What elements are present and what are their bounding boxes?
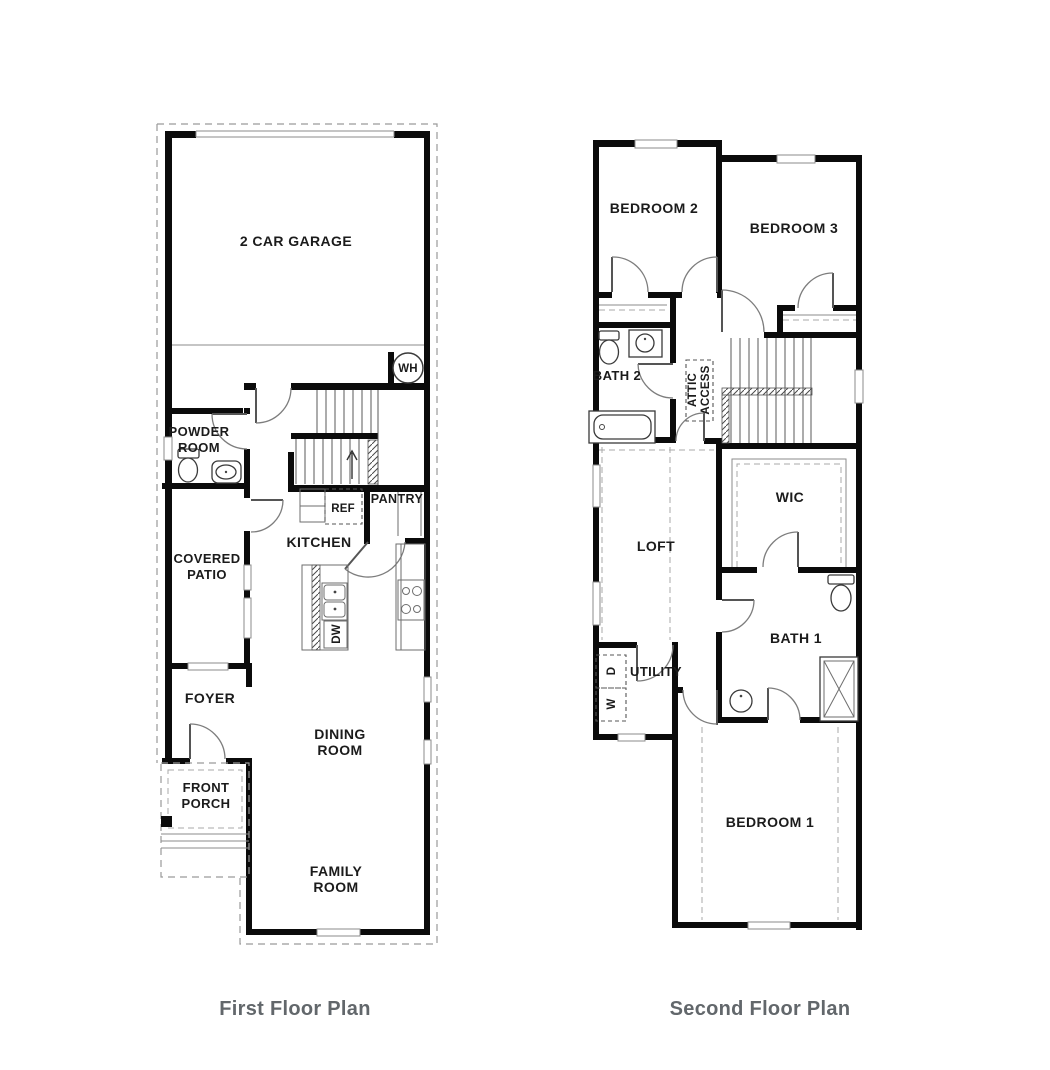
windows-2	[593, 140, 863, 929]
floor-plan-drawing: 2 CAR GARAGE WH POWDER ROOM COVERED PATI…	[0, 0, 1050, 1070]
stair-direction-arrow	[347, 451, 357, 479]
first-floor-caption: First Floor Plan	[219, 998, 370, 1020]
water-heater-label: WH	[398, 363, 418, 375]
covered-patio-label-2: PATIO	[187, 567, 227, 582]
wic-label: WIC	[776, 489, 804, 505]
stove	[398, 580, 424, 620]
refrigerator-label: REF	[331, 503, 355, 515]
second-floor-caption: Second Floor Plan	[670, 998, 851, 1020]
second-floor-plan: BEDROOM 2 BEDROOM 3 BATH 2 ATTIC ACCESS …	[589, 140, 863, 930]
bedroom3-label: BEDROOM 3	[750, 220, 838, 236]
stairs-second-floor	[722, 338, 812, 443]
washer-label: W	[606, 698, 618, 709]
powder-room-label-2: ROOM	[178, 440, 220, 455]
front-porch-label-1: FRONT	[183, 780, 230, 795]
porch-post	[161, 816, 172, 827]
dryer-label: D	[606, 667, 618, 676]
attic-access-label: ATTIC ACCESS	[687, 365, 712, 414]
toilet	[599, 331, 619, 364]
first-floor-labels: 2 CAR GARAGE WH POWDER ROOM COVERED PATI…	[169, 233, 424, 895]
bath1-fixtures	[730, 575, 858, 721]
family-room-label-1: FAMILY	[310, 863, 363, 879]
bath2-label: BATH 2	[593, 368, 641, 383]
exterior-walls	[162, 131, 430, 935]
floor-plan-sheet: 2 CAR GARAGE WH POWDER ROOM COVERED PATI…	[0, 0, 1050, 1070]
bath2-fixtures	[589, 330, 662, 443]
dishwasher-label: DW	[331, 624, 343, 644]
bath1-label: BATH 1	[770, 630, 822, 646]
windows	[164, 437, 431, 936]
foyer-label: FOYER	[185, 690, 235, 706]
first-floor-plan: 2 CAR GARAGE WH POWDER ROOM COVERED PATI…	[157, 124, 437, 944]
counter	[396, 544, 425, 650]
bedroom1-label: BEDROOM 1	[726, 814, 814, 830]
covered-patio-label-1: COVERED	[173, 551, 240, 566]
stair-rail-hatch	[722, 388, 812, 395]
kitchen-fixtures	[300, 489, 425, 650]
sink	[730, 690, 752, 712]
sink	[629, 330, 662, 357]
sink	[212, 461, 241, 483]
svg-text:ACCESS: ACCESS	[700, 365, 712, 414]
wic-shelving	[732, 459, 846, 567]
stair-rail-hatch	[368, 440, 378, 484]
dining-room-label-2: ROOM	[317, 742, 362, 758]
family-room-label-2: ROOM	[313, 879, 358, 895]
toilet	[828, 575, 854, 611]
closet-shelving	[599, 305, 856, 320]
interior-walls	[162, 352, 430, 687]
garage-label: 2 CAR GARAGE	[240, 233, 352, 249]
shower	[820, 657, 858, 721]
bathtub	[589, 411, 655, 443]
plan-captions: First Floor Plan Second Floor Plan	[219, 998, 850, 1020]
double-sink	[324, 585, 345, 617]
loft-label: LOFT	[637, 538, 675, 554]
cabinet	[300, 506, 325, 522]
garage-door	[196, 129, 394, 139]
stair-rail-hatch	[722, 395, 729, 443]
utility-label: UTILITY	[630, 664, 682, 679]
front-porch-label-2: PORCH	[182, 796, 231, 811]
svg-text:ATTIC: ATTIC	[687, 373, 699, 407]
exterior-walls-2	[593, 140, 862, 930]
bedroom2-label: BEDROOM 2	[610, 200, 698, 216]
powder-room-label-1: POWDER	[169, 424, 230, 439]
dining-room-label-1: DINING	[314, 726, 365, 742]
kitchen-label: KITCHEN	[286, 534, 351, 550]
pantry-label: PANTRY	[371, 492, 424, 506]
washer-dryer	[596, 655, 626, 721]
